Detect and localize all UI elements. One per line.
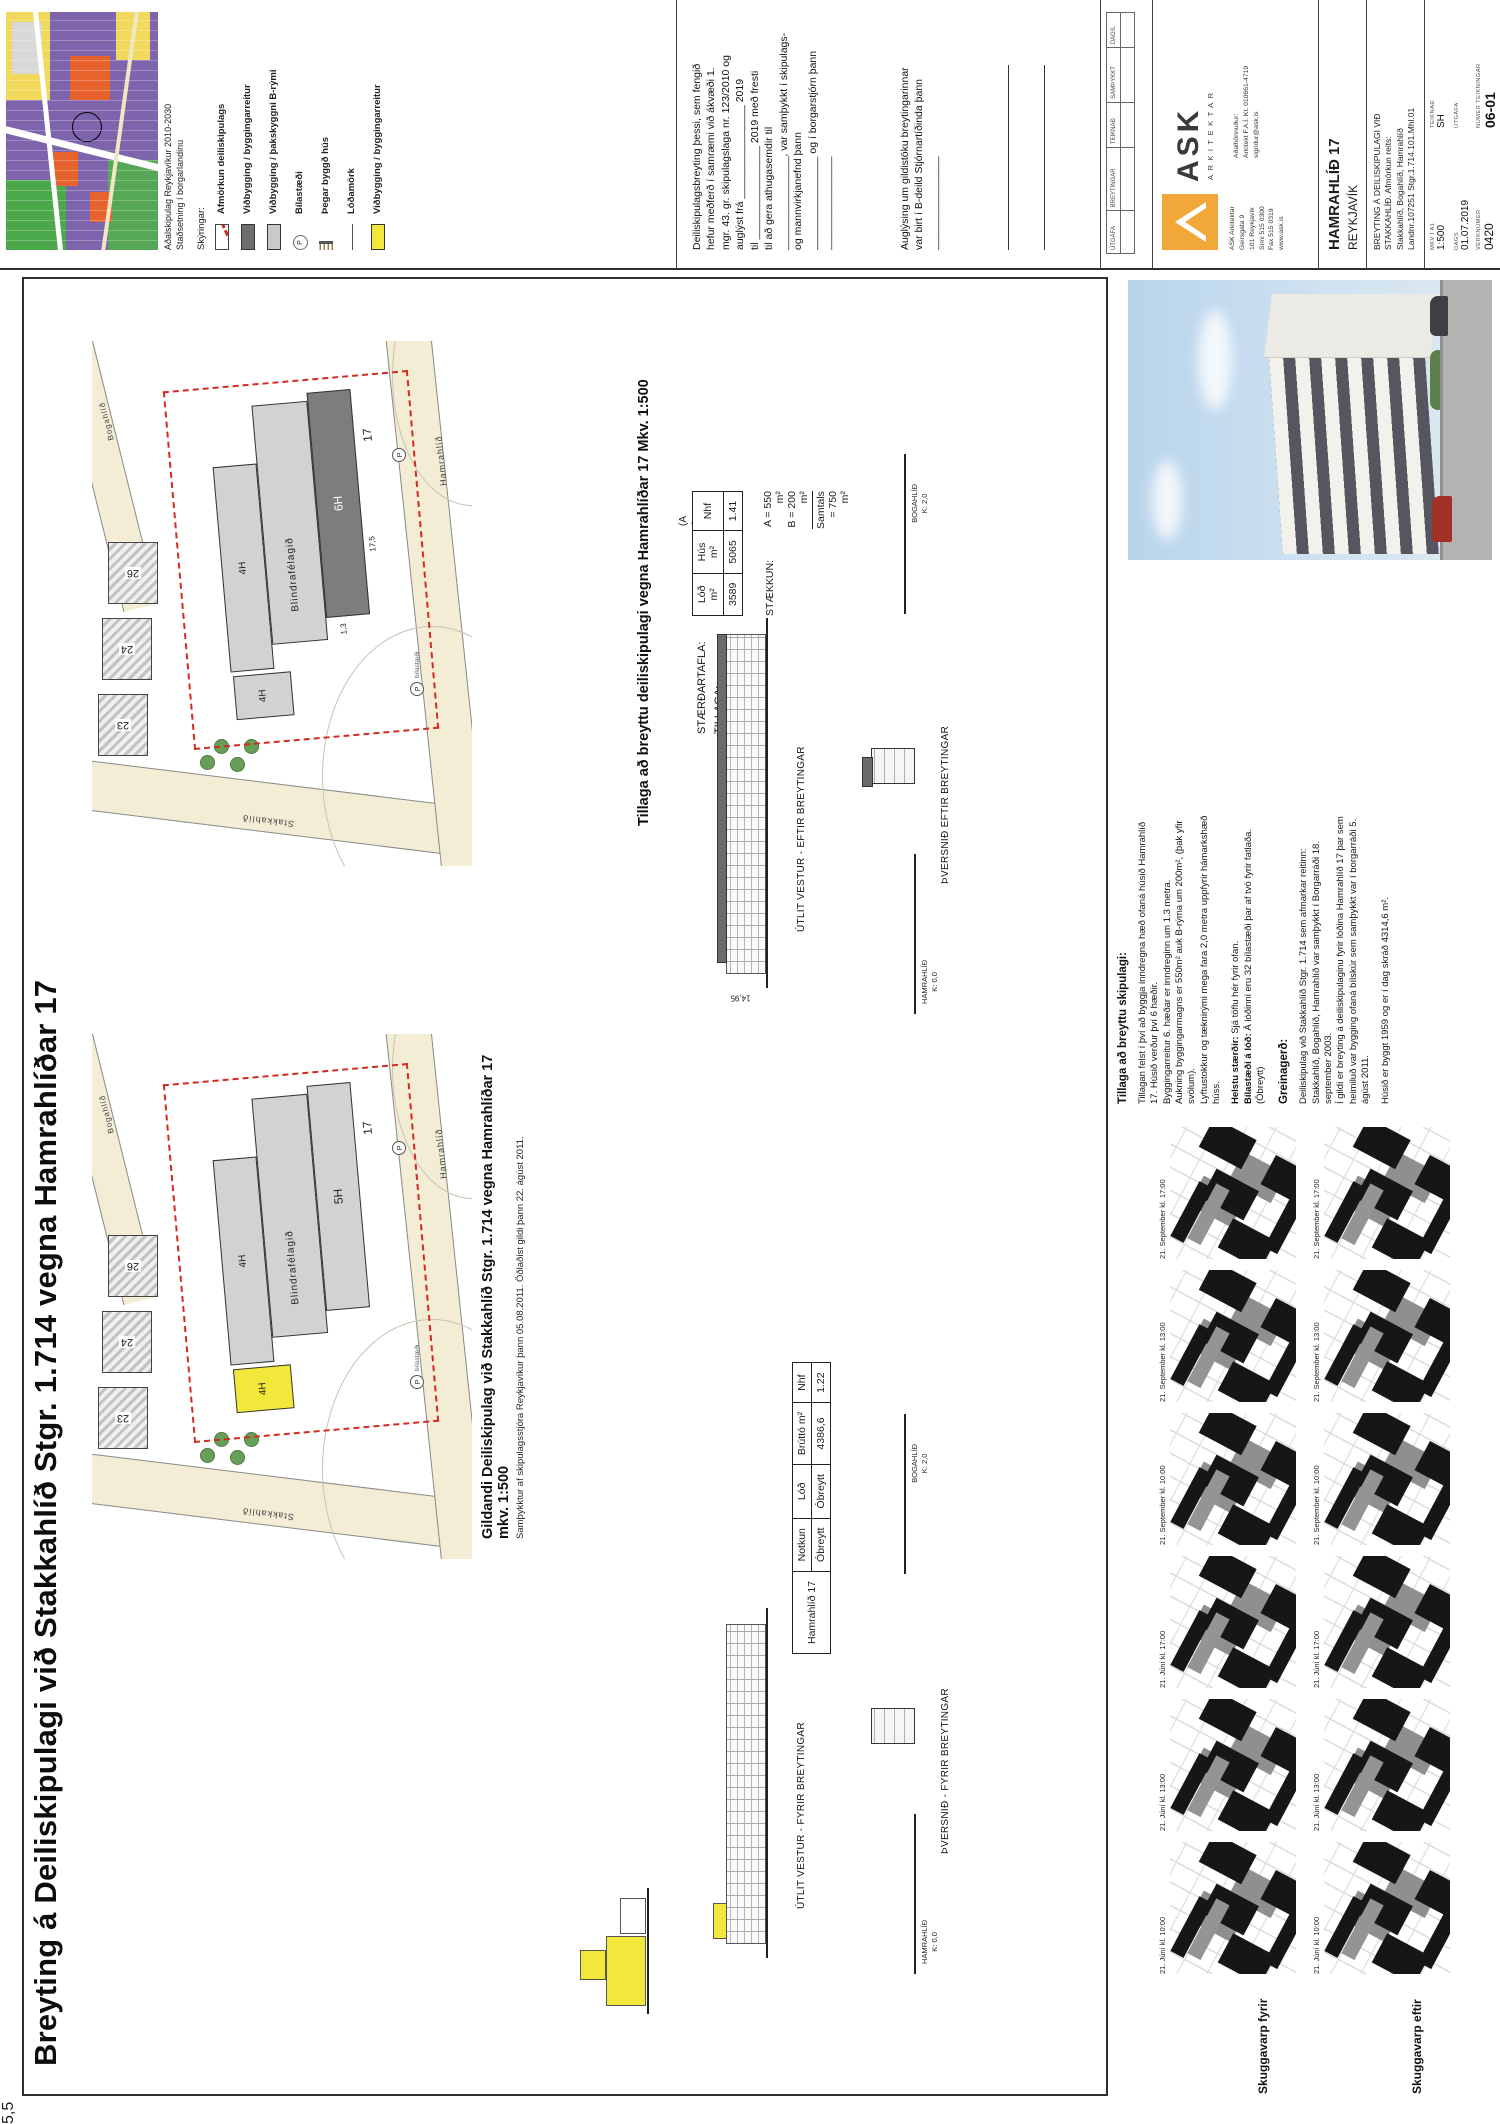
legend-label: Viðbygging / byggingarreitur	[372, 84, 383, 214]
shadow-time-label: 21. Júní kl. 13:00	[1158, 1774, 1167, 1831]
dimension-setback: 5,5	[0, 0, 18, 2124]
neighbor-number: 23	[115, 1412, 131, 1424]
value-cell: 5065	[724, 531, 743, 573]
staekkun-a: A = 550 m²	[762, 491, 786, 529]
value-cell: 4386,6	[812, 1402, 831, 1464]
divider	[676, 0, 677, 268]
neighbor-house: 24	[102, 618, 152, 680]
tree-icon	[230, 1450, 245, 1465]
page-title: Breyting á Deiliskipulagi við Stakkahlíð…	[28, 980, 64, 2066]
field-sheet-number: NÚMER TEIKNINGAR 06-01	[1476, 63, 1498, 128]
tree-icon	[200, 1448, 215, 1463]
ground-line	[766, 618, 768, 988]
field-value: 1:500	[1436, 223, 1447, 250]
shadow-diagram-after	[1324, 1842, 1450, 1974]
ask-wordmark-sub: ARKITEKTAR	[1206, 88, 1215, 180]
caption-elevation-west-after: ÚTLIT VESTUR - EFTIR BREYTINGAR	[796, 746, 807, 932]
field-drawn-by: TEIKNAÐ SH	[1430, 100, 1447, 128]
yellow-addition-on-elevation	[713, 1903, 727, 1939]
shadow-time-label: 21. September kl. 17:00	[1158, 1179, 1167, 1259]
shadow-diagram-after	[1324, 1699, 1450, 1831]
proposed-size-table: Lóð m² Hús m² Nhf 3589 5065 1.41	[692, 491, 743, 616]
greinagerd-heading: Greinagerð:	[1277, 574, 1292, 1104]
siteplan-existing: 23 24 26 4H 4H Blindrafélagið 5H 17 P P …	[92, 1034, 472, 1559]
shadow-time-label: 21. Júní kl. 10:00	[1312, 1917, 1321, 1974]
map-caption-line1: Aðalskipulag Reykjavíkur 2010-2030	[163, 104, 175, 250]
value-cell: 3589	[724, 573, 743, 615]
building-section-profile	[871, 1708, 915, 1744]
lot-boundary-line-icon	[352, 224, 353, 250]
rev-header: BREYTINGAR	[1107, 148, 1121, 211]
neighbor-house: 23	[98, 694, 148, 756]
staekkun-label: STÆKKUN:	[764, 560, 776, 616]
caption-elevation-west-before: ÚTLIT VESTUR - FYRIR BREYTINGAR	[796, 1722, 807, 1909]
yellow-shape	[580, 1950, 606, 1980]
map-caption: Aðalskipulag Reykjavíkur 2010-2030 Staðs…	[163, 104, 186, 250]
floor-count-label: 4H	[237, 1254, 249, 1268]
shadow-diagram-after	[1324, 1127, 1450, 1259]
building-small-wing: 4H	[233, 671, 295, 720]
shadow-time-label: 21. September kl. 10:00	[1312, 1465, 1321, 1545]
neighbor-house: 26	[108, 1235, 158, 1297]
field-value: 01.07.2019	[1460, 200, 1471, 250]
car-shape	[1430, 296, 1448, 336]
shadow-time-label: 21. Júní kl. 17:00	[1158, 1631, 1167, 1688]
table-row: 3589 5065 1.41	[724, 491, 743, 615]
neighbor-number: 24	[119, 643, 135, 655]
floor-count-label: 4H	[237, 561, 249, 575]
red-dashed-boundary-icon	[215, 224, 229, 250]
title-block-strip: Aðalskipulag Reykjavíkur 2010-2030 Staðs…	[0, 0, 1500, 270]
field-job-number: VERKNÚMER 0420	[1476, 209, 1496, 250]
narrative-heading: Tillaga að breyttu skipulagi:	[1116, 574, 1131, 1104]
narrative-text: Sjá töflu hér fyrir ofan.	[1230, 941, 1241, 1034]
cloud-shape	[1152, 460, 1182, 540]
parking-icon: P	[410, 1375, 424, 1389]
parking-text-label: bílastæði	[414, 652, 421, 678]
divider	[1366, 0, 1367, 268]
building-blindrafelagid: 4H 4H Blindrafélagið 5H 17	[206, 1075, 393, 1408]
caption-existing-plan: Gildandi Deiliskipulag við Stakkahlíð St…	[480, 1019, 526, 1539]
designer-label: Aðalhönnuður:	[1232, 8, 1242, 158]
cloud-shape	[1198, 310, 1232, 410]
project-city: REYKJAVÍK	[1346, 185, 1360, 250]
neighbor-house: 23	[98, 1387, 148, 1449]
scanned-plan-sheet: Breyting á Deiliskipulagi við Stakkahlíð…	[0, 0, 1500, 2124]
existing-size-table: Hamrahlíð 17 Notkun Lóð Brúttó m² Nhf Ób…	[792, 1362, 831, 1654]
value-cell: Óbreytt	[812, 1518, 831, 1571]
header-cell: Nhf	[793, 1363, 812, 1402]
new-top-floor-band	[717, 634, 727, 963]
shadow-diagram-after	[1324, 1556, 1450, 1688]
caption-proposed-plan: Tillaga að breyttu deiliskipulagi vegna …	[636, 346, 652, 826]
neighbor-house: 26	[108, 542, 158, 604]
siteplan-proposed: 23 24 26 4H 4H Blindrafélagið 6H 17,5 1,…	[92, 341, 472, 866]
parking-icon: P	[392, 1141, 406, 1155]
field-scale: MKV Í A1 1:500	[1430, 223, 1447, 250]
shadow-diagram-before	[1170, 1556, 1296, 1688]
floor-count-label: 5H	[331, 1188, 346, 1205]
field-issue: ÚTGÁFA	[1454, 102, 1460, 128]
value-cell: Óbreytt	[812, 1465, 831, 1518]
house-number-label: 17	[360, 428, 375, 443]
section-after: HAMRAHLÍÐ K: 0,0 BOGAHLÍÐ K: 2,0 ÞVERSNI…	[840, 454, 950, 1014]
neighbor-number: 26	[125, 1260, 141, 1272]
shadow-diagram-before	[1170, 1270, 1296, 1402]
gazette-announcement-text: Auglýsing um gildistöku breytingarinnar …	[898, 10, 941, 250]
ground-line	[766, 1608, 768, 1958]
street-level-label-hamrahlid: HAMRAHLÍÐ K: 0,0	[920, 960, 940, 1004]
tree-icon	[200, 755, 215, 770]
table-row	[1121, 13, 1135, 254]
parking-text-label: bílastæði	[414, 1345, 421, 1371]
header-cell: Nhf	[693, 491, 724, 530]
shadow-time-label: 21. September kl. 10:00	[1158, 1465, 1167, 1545]
header-cell: Lóð m²	[693, 573, 724, 615]
drawing-title: BREYTING Á DEILISKIPULAGI VIÐ STAKKAHLÍÐ…	[1372, 108, 1418, 250]
architect-address: ASK Arkitektar Geirsgata 9 101 Reykjavík…	[1228, 206, 1287, 250]
narrative-label: Helstu stærðir:	[1230, 1036, 1241, 1104]
size-table-title-line1: STÆRÐARTAFLA:	[694, 642, 711, 735]
value-cell: 1.41	[724, 491, 743, 530]
building-photo-rendering	[1128, 280, 1492, 560]
parking-icon: P	[392, 448, 406, 462]
yellow-addition-elevation-snippet	[580, 1896, 654, 2006]
ask-wordmark: ASK	[1172, 107, 1206, 182]
building-name-label: Blindrafélagið	[284, 537, 301, 612]
shadow-time-label: 21. September kl. 13:00	[1158, 1322, 1167, 1402]
caption-approval-note: Samþykktur af skipulagsstjóra Reykjavíku…	[515, 1019, 526, 1539]
narrative-line: Helstu stærðir: Sjá töflu hér fyrir ofan…	[1230, 574, 1242, 1104]
legend-title: Skýringar:	[196, 207, 207, 250]
outline-shape	[620, 1898, 646, 1934]
staekkun-values: A = 550 m² B = 200 m² Samtals = 750 m²	[762, 491, 851, 529]
narrative-paragraph: Tillagan felst í því að byggja inndregna…	[1137, 574, 1223, 1104]
building-blindrafelagid: 4H 4H Blindrafélagið 6H 17,5 1,3 17	[206, 382, 393, 715]
elevation-west-after	[726, 634, 766, 974]
header-cell: Hús m²	[693, 531, 724, 573]
shadow-time-label: 21. September kl. 17:00	[1312, 1179, 1321, 1259]
tree-icon	[230, 757, 245, 772]
shadow-time-label: 21. Júní kl. 13:00	[1312, 1774, 1321, 1831]
building-name-label: Blindrafélagið	[284, 1230, 301, 1305]
shadow-time-label: 21. September kl. 13:00	[1312, 1322, 1321, 1402]
rev-header: SAMÞYKKT	[1107, 48, 1121, 103]
dimension-height: 14,95	[730, 993, 750, 1002]
designer-email: sigridur@ask.is	[1252, 8, 1262, 158]
header-cell: Brúttó m²	[793, 1402, 812, 1464]
dimension-label: 17,5	[367, 536, 377, 552]
divider	[1100, 0, 1101, 268]
shadow-time-label: 21. Júní kl. 10:00	[1158, 1917, 1167, 1974]
drawing-sheet-landscape: Breyting á Deiliskipulagi við Stakkahlíð…	[0, 0, 1500, 2124]
narrative-label: Bílastæði á lóð:	[1243, 1033, 1254, 1104]
dimension-label: 1,3	[339, 623, 349, 635]
caption-title: Gildandi Deiliskipulag við Stakkahlíð St…	[480, 1019, 512, 1539]
dark-gray-box-icon	[241, 224, 255, 250]
yellow-box-icon	[371, 224, 385, 250]
rev-header: TEIKNAÐ	[1107, 102, 1121, 147]
legend-label: Þegar byggð hús	[320, 137, 331, 214]
rev-header: DAGS.	[1107, 13, 1121, 48]
shadow-diagram-before	[1170, 1413, 1296, 1545]
greinagerd-paragraph: Deiliskipulag við Stakkahlíð Stgr. 1.714…	[1298, 574, 1372, 1104]
neighbor-house: 24	[102, 1311, 152, 1373]
field-value: SH	[1436, 100, 1447, 128]
ground-line-hamrahlid	[914, 854, 916, 1014]
field-label: ÚTGÁFA	[1454, 102, 1460, 128]
ask-logo-icon	[1162, 194, 1218, 250]
street-level-label-hamrahlid: HAMRAHLÍÐ K: 0,0	[920, 1920, 940, 1964]
shadow-diagram-after	[1324, 1413, 1450, 1545]
divider	[1318, 0, 1319, 268]
signature-line	[1044, 65, 1045, 250]
neighbor-number: 26	[125, 567, 141, 579]
parking-icon: P	[410, 682, 424, 696]
street-level-label-bogahlid: BOGAHLÍÐ K: 2,0	[910, 484, 930, 523]
floor-count-label: 4H	[257, 689, 269, 703]
ground-line	[647, 1888, 649, 2014]
revision-table: ÚTGÁFA BREYTINGAR TEIKNAÐ SAMÞYKKT DAGS.	[1106, 12, 1135, 254]
map-caption-line2: Staðsetning í borgarlandinu	[175, 104, 187, 250]
caption-section-after: ÞVERSNIÐ EFTIR BREYTINGAR	[940, 726, 951, 884]
legend-label: Afmörkun deiliskipulags	[216, 104, 227, 214]
shadow-row-caption-before: Skuggavarp fyrir	[1256, 1999, 1270, 2094]
header-cell: Lóð	[793, 1465, 812, 1518]
neighbor-number: 24	[119, 1336, 135, 1348]
shadow-diagram-before	[1170, 1699, 1296, 1831]
field-value: 06-01	[1482, 63, 1498, 128]
designer-credentials: Arkitekt F.A.Í. Kt. 010661-4719	[1242, 8, 1252, 158]
legend-label: Bílastæði	[294, 171, 305, 214]
map-texture	[6, 12, 158, 250]
existing-building-line-icon	[319, 241, 333, 250]
car-shape	[1432, 496, 1452, 542]
floor-count-label: 4H	[257, 1382, 269, 1396]
table-row: Lóð m² Hús m² Nhf	[693, 491, 724, 615]
shadow-row-caption-after: Skuggavarp eftir	[1410, 1999, 1424, 2094]
floor-count-label: 6H	[331, 495, 346, 512]
table-row: Hamrahlíð 17 Notkun Lóð Brúttó m² Nhf	[793, 1363, 812, 1654]
field-value: 0420	[1482, 209, 1496, 250]
yellow-shape	[606, 1936, 646, 2006]
ground-line-bogahlid	[904, 1414, 906, 1574]
shadow-diagram-after	[1324, 1270, 1450, 1402]
greinagerd-footnote: Húsið er byggt 1959 og er í dag skráð 43…	[1380, 574, 1392, 1104]
legend-label: Viðbygging / byggingarreitur	[242, 84, 253, 214]
light-gray-box-icon	[267, 224, 281, 250]
table-row: ÚTGÁFA BREYTINGAR TEIKNAÐ SAMÞYKKT DAGS.	[1107, 13, 1121, 254]
shadow-time-label: 21. Júní kl. 17:00	[1312, 1631, 1321, 1688]
building-gable-face	[1264, 294, 1438, 358]
rev-header: ÚTGÁFA	[1107, 211, 1121, 254]
street-level-label-bogahlid: BOGAHLÍÐ K: 2,0	[910, 1444, 930, 1483]
value-cell: 1.22	[812, 1363, 831, 1402]
signature-line	[1008, 65, 1009, 250]
divider	[1152, 0, 1153, 268]
ground-line-hamrahlid	[914, 1814, 916, 1974]
building-facade-face	[1269, 358, 1439, 554]
approval-declaration-text: Deiliskipulagsbreyting þessi, sem fengið…	[690, 10, 835, 250]
building-section-profile-with-addition	[871, 748, 915, 784]
legend-label: Viðbygging / þakskyggni B-rými	[268, 70, 279, 214]
shadow-diagram-before	[1170, 1842, 1296, 1974]
section-before: HAMRAHLÍÐ K: 0,0 BOGAHLÍÐ K: 2,0 ÞVERSNI…	[840, 1414, 950, 1974]
neighbor-number: 23	[115, 719, 131, 731]
ground-line-bogahlid	[904, 454, 906, 614]
building-yellow-addition: 4H	[233, 1364, 295, 1413]
shadow-diagram-before	[1170, 1127, 1296, 1259]
elevation-west-before	[726, 1624, 766, 1944]
designer-info-block: Aðalhönnuður: Arkitekt F.A.Í. Kt. 010661…	[1232, 8, 1262, 158]
location-map	[6, 12, 158, 250]
narrative-block: Tillaga að breyttu skipulagi: Tillagan f…	[1116, 574, 1393, 1104]
narrative-line: Bílastæði á lóð: Á lóðinni eru 32 bílast…	[1243, 574, 1268, 1104]
parking-circle-icon: P	[293, 235, 308, 250]
field-date: DAGS 01.07.2019	[1454, 200, 1471, 250]
header-cell: Notkun	[793, 1518, 812, 1571]
staekkun-b: B = 200 m²	[786, 491, 810, 529]
row-header-cell: Hamrahlíð 17	[793, 1571, 831, 1653]
project-title: HAMRAHLÍÐ 17	[1326, 138, 1343, 250]
caption-section-before: ÞVERSNIÐ - FYRIR BREYTINGAR	[940, 1688, 951, 1854]
divider	[1424, 0, 1425, 268]
legend-label: Lóðamörk	[346, 168, 357, 214]
house-number-label: 17	[360, 1121, 375, 1136]
